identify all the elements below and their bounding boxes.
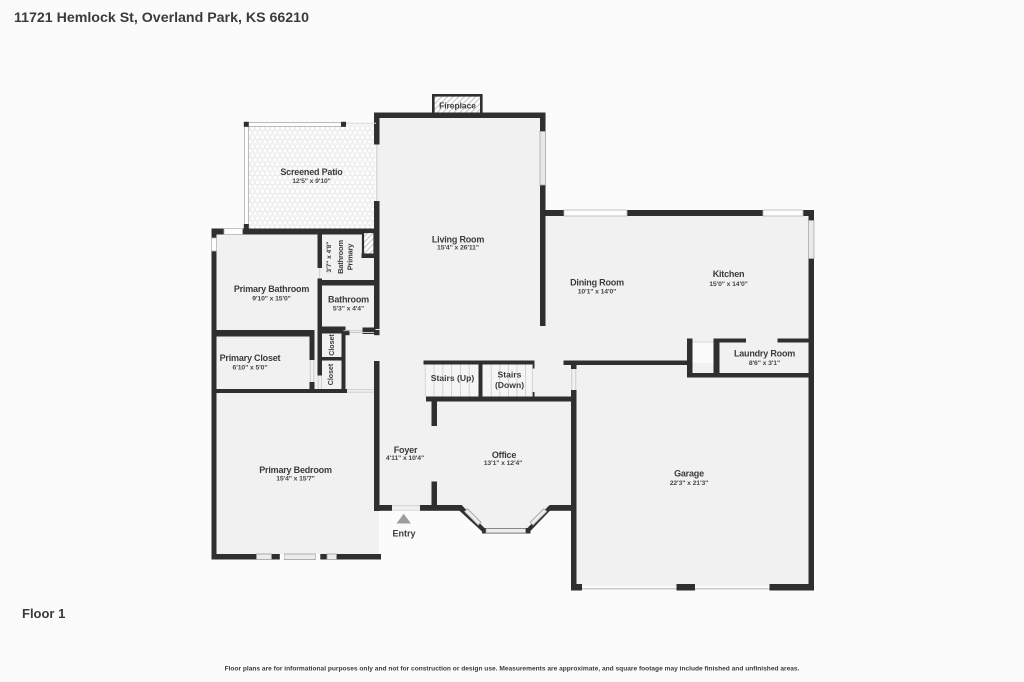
svg-text:15'4" x 26'11": 15'4" x 26'11" — [437, 245, 479, 252]
svg-text:Floor plans are for informatio: Floor plans are for informational purpos… — [225, 666, 800, 673]
svg-text:Bathroom: Bathroom — [328, 295, 369, 305]
svg-text:10'1" x 14'0": 10'1" x 14'0" — [578, 289, 617, 296]
svg-text:Closet: Closet — [328, 363, 335, 385]
svg-text:Floor 1: Floor 1 — [22, 606, 65, 621]
svg-text:Stairs: Stairs — [498, 370, 522, 380]
svg-text:12'5" x 9'10": 12'5" x 9'10" — [292, 178, 331, 185]
svg-text:Fireplace: Fireplace — [439, 101, 476, 111]
svg-text:Entry: Entry — [392, 529, 415, 539]
svg-text:Foyer: Foyer — [394, 445, 418, 455]
svg-text:4'11" x 10'4": 4'11" x 10'4" — [386, 455, 424, 462]
svg-text:Kitchen: Kitchen — [713, 269, 745, 279]
svg-text:9'10" x 15'0": 9'10" x 15'0" — [252, 296, 291, 303]
svg-text:Closet: Closet — [329, 334, 336, 356]
svg-text:Primary Bedroom: Primary Bedroom — [259, 465, 332, 475]
svg-text:3'7" x 4'8": 3'7" x 4'8" — [326, 242, 333, 273]
svg-text:15'4" x 15'7": 15'4" x 15'7" — [276, 476, 315, 483]
svg-text:11721 Hemlock St, Overland Par: 11721 Hemlock St, Overland Park, KS 6621… — [14, 10, 309, 26]
svg-text:5'3" x 4'4": 5'3" x 4'4" — [333, 306, 364, 313]
svg-text:8'6" x 3'1": 8'6" x 3'1" — [749, 360, 780, 367]
svg-text:Laundry Room: Laundry Room — [734, 349, 795, 359]
svg-text:(Down): (Down) — [495, 380, 524, 390]
svg-text:Primary Closet: Primary Closet — [220, 353, 281, 363]
svg-text:Office: Office — [492, 450, 517, 460]
svg-text:Screened Patio: Screened Patio — [280, 167, 343, 177]
svg-text:Primary Bathroom: Primary Bathroom — [234, 284, 310, 294]
svg-text:6'10" x 5'0": 6'10" x 5'0" — [233, 365, 268, 372]
svg-text:13'1" x 12'4": 13'1" x 12'4" — [484, 460, 523, 467]
svg-text:22'3" x 21'3": 22'3" x 21'3" — [670, 480, 709, 487]
svg-text:15'0" x 14'0": 15'0" x 14'0" — [709, 281, 748, 288]
svg-text:Garage: Garage — [674, 469, 704, 479]
svg-text:Dining Room: Dining Room — [570, 278, 624, 288]
svg-text:Bathroom: Bathroom — [336, 240, 345, 274]
svg-text:Stairs (Up): Stairs (Up) — [431, 373, 475, 383]
svg-text:Living Room: Living Room — [432, 235, 484, 245]
svg-text:Primary: Primary — [346, 243, 355, 271]
